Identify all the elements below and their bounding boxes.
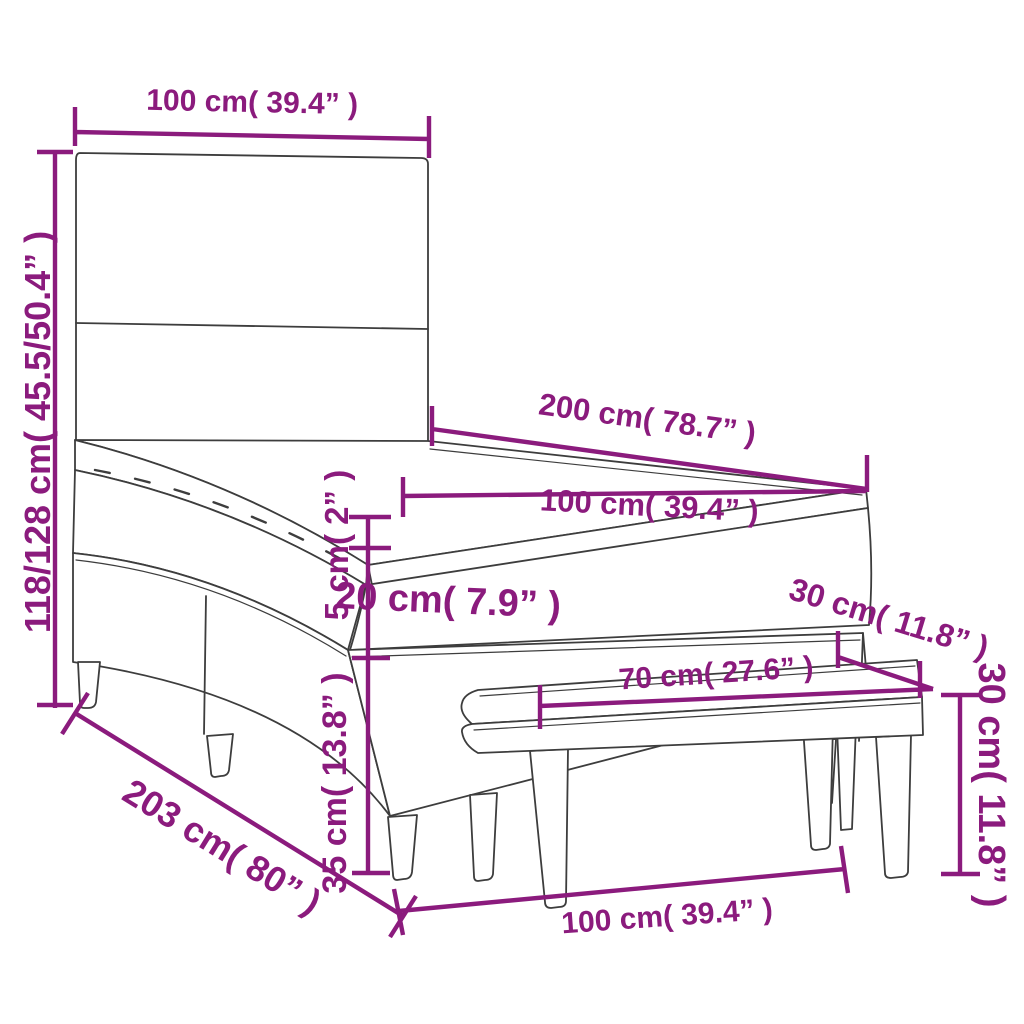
bench-leg-front-right [876,735,911,878]
label-headboard-width: 100 cm( 39.4” ) [146,84,358,121]
headboard [76,153,428,452]
bench-drawing [461,660,923,908]
bench-leg-back-left [803,725,833,850]
label-base-height: 35 cm( 13.8” ) [316,672,354,893]
bed-dimension-diagram: 100 cm( 39.4” ) 118/128 cm( 45.5/50.4” )… [0,0,1024,1024]
label-mattress-length: 200 cm( 78.7” ) [537,386,759,450]
label-total-height: 118/128 cm( 45.5/50.4” ) [17,231,58,633]
bed-leg-foot-middle [470,793,497,881]
label-bed-length: 203 cm( 80” ) [116,771,329,923]
bed-leg-middle [207,734,233,777]
label-bench-height: 30 cm( 11.8” ) [970,662,1012,907]
bed-leg-foot-near [388,815,417,880]
label-bench-width: 100 cm( 39.4” ) [560,893,774,941]
bench-leg-back-right [837,725,856,830]
bench-leg-front-left [530,749,568,908]
diagram-canvas: 100 cm( 39.4” ) 118/128 cm( 45.5/50.4” )… [0,0,1024,1024]
